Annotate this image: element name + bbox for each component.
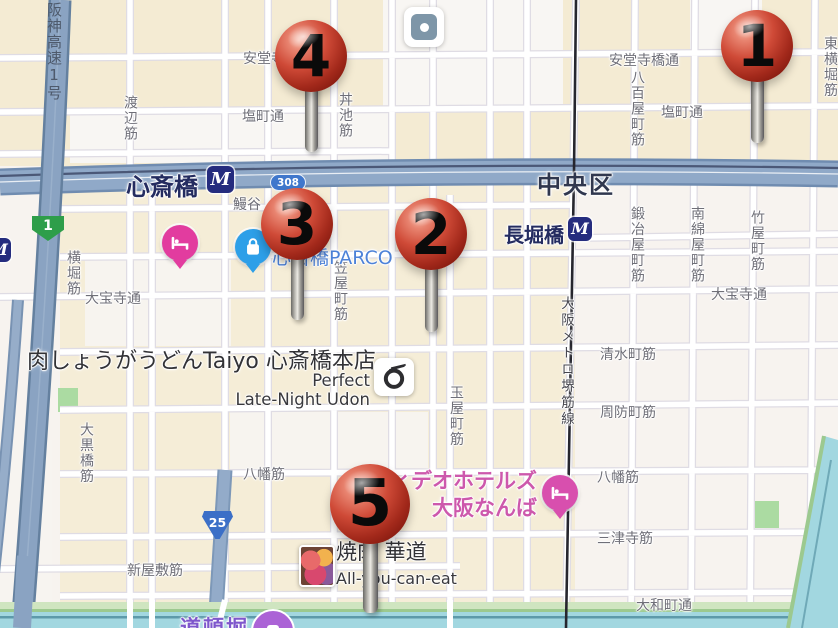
- map-pin-5[interactable]: 5: [330, 464, 410, 544]
- transit-line-label: 阪神高速1号: [44, 2, 65, 101]
- poi-name-label: Late-Night Udon: [235, 390, 370, 409]
- food-photo-thumbnail: [299, 545, 335, 587]
- pointer-tail: [553, 510, 567, 519]
- poi-name-label: ィデオホテルズ: [390, 465, 537, 495]
- street-label: 大和町通: [636, 595, 692, 615]
- metro-logo: M: [211, 171, 231, 189]
- street-label: 新屋敷筋: [127, 560, 183, 580]
- map-annotations-layer: 安堂寺橋通安堂寺橋通塩町通塩町通鰻谷大宝寺通大宝寺通清水町筋周防町筋八幡筋八幡筋…: [0, 0, 838, 628]
- bed-icon: [542, 475, 578, 511]
- route-shield-25: 25: [202, 511, 233, 539]
- street-label: 清水町筋: [600, 344, 656, 364]
- pin-ball: 2: [395, 198, 467, 270]
- metro-station-icon[interactable]: M: [207, 166, 234, 193]
- district-label: 中央区: [537, 165, 615, 200]
- street-label: 大黒橋筋: [76, 422, 96, 484]
- street-label: 周防町筋: [600, 402, 656, 422]
- street-label: 塩町通: [242, 106, 284, 126]
- transit-line-label: 大阪メトロ堺筋線: [556, 296, 576, 428]
- bed-icon: [162, 225, 198, 261]
- metro-station-icon[interactable]: M: [568, 217, 592, 241]
- pin-number: 1: [721, 10, 793, 82]
- poi-hotel[interactable]: [162, 225, 198, 261]
- udon-bowl-icon: [374, 358, 414, 396]
- pointer-tail: [246, 264, 260, 273]
- pin-ball: 3: [261, 188, 333, 260]
- poi-hotel[interactable]: [542, 475, 578, 511]
- map-pin-4[interactable]: 4: [275, 20, 347, 92]
- square-dot-icon: [404, 7, 444, 47]
- poi-name-label: All-you-can-eat: [336, 569, 457, 588]
- street-label: 大宝寺通: [711, 284, 767, 304]
- poi-udon[interactable]: [374, 358, 414, 396]
- pin-ball: 1: [721, 10, 793, 82]
- map-pin-1[interactable]: 1: [721, 10, 793, 82]
- street-label: 塩町通: [661, 102, 703, 122]
- pin-number: 2: [395, 198, 467, 270]
- street-label: 南綿屋町筋: [687, 206, 707, 284]
- street-label: 鰻谷: [233, 194, 261, 214]
- purple-poi-icon: [251, 609, 295, 628]
- metro-logo: M: [571, 221, 589, 237]
- street-label: 大宝寺通: [85, 288, 141, 308]
- pin-number: 3: [261, 188, 333, 260]
- pin-ball: 5: [330, 464, 410, 544]
- street-label: 竹屋町筋: [747, 210, 767, 272]
- street-label: 玉屋町筋: [446, 385, 466, 447]
- poi-metro-edge[interactable]: M: [0, 238, 11, 262]
- pin-number: 4: [275, 20, 347, 92]
- street-label: 三津寺筋: [597, 528, 653, 548]
- poi-square-dot[interactable]: [404, 7, 444, 47]
- street-label: 八百屋町筋: [627, 70, 647, 148]
- pin-ball: 4: [275, 20, 347, 92]
- map-pin-3[interactable]: 3: [261, 188, 333, 260]
- street-label: 安堂寺橋通: [609, 50, 679, 70]
- poi-name-label: 大阪なんば: [432, 492, 537, 522]
- street-label: 鍛冶屋町筋: [627, 206, 647, 284]
- pin-number: 5: [330, 464, 410, 544]
- pointer-tail: [173, 260, 187, 269]
- street-label: 八幡筋: [597, 467, 639, 487]
- map-pin-2[interactable]: 2: [395, 198, 467, 270]
- street-label: 東横堀筋: [820, 36, 838, 98]
- metro-station-icon: M: [0, 238, 11, 262]
- map-canvas[interactable]: 安堂寺橋通安堂寺橋通塩町通塩町通鰻谷大宝寺通大宝寺通清水町筋周防町筋八幡筋八幡筋…: [0, 0, 838, 628]
- route-shield-1: 1: [32, 216, 64, 241]
- poi-name-label: 道頓堀: [180, 612, 249, 628]
- poi-purple-circle[interactable]: [251, 609, 295, 628]
- poi-photo[interactable]: [299, 545, 335, 587]
- street-label: 横堀筋: [63, 250, 83, 297]
- station-label: 長堀橋: [504, 219, 564, 248]
- street-label: 丼池筋: [335, 92, 355, 139]
- street-label: 渡辺筋: [120, 95, 140, 142]
- station-label: 心斎橋: [126, 167, 198, 202]
- poi-name-label: Perfect: [312, 371, 370, 390]
- street-label: 八幡筋: [243, 464, 285, 484]
